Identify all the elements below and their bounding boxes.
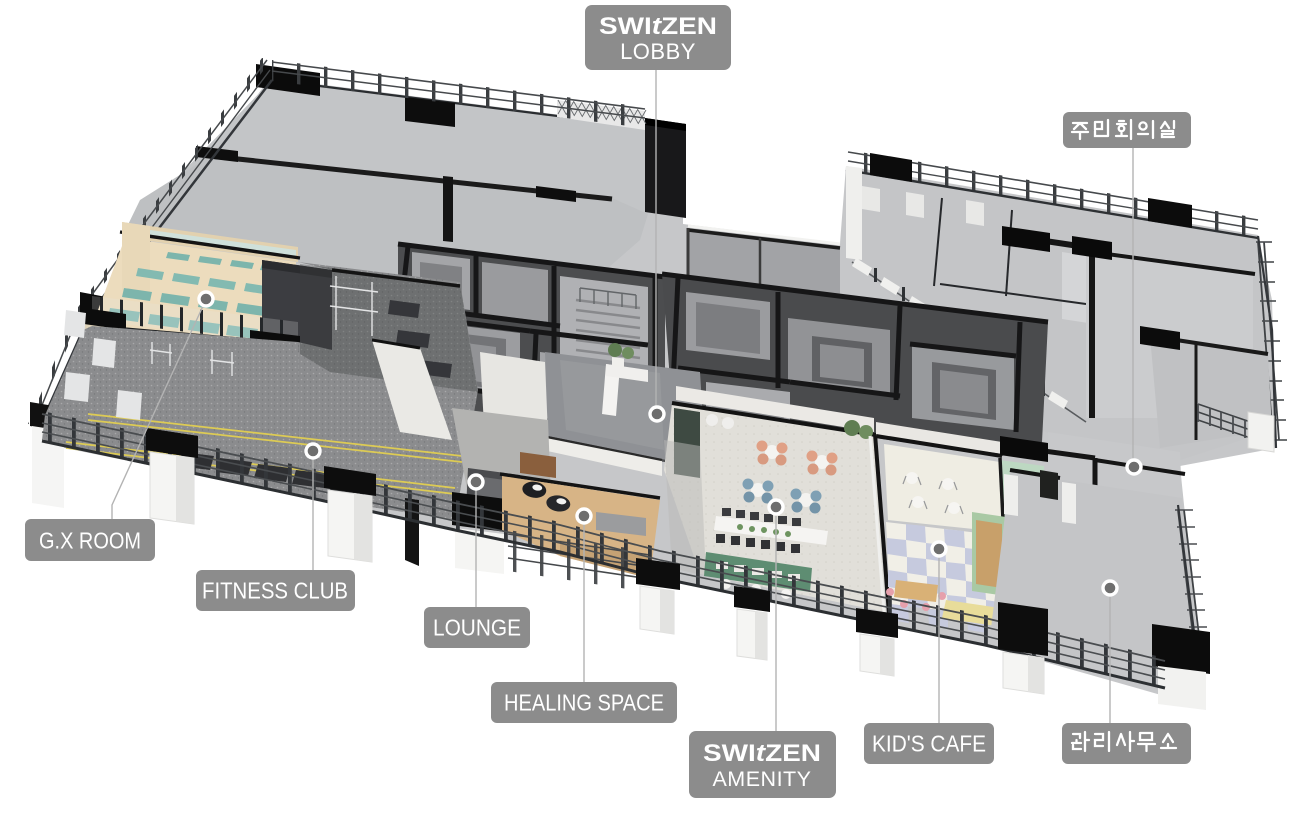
svg-text:FITNESS CLUB: FITNESS CLUB <box>202 578 348 604</box>
svg-text:SWItZEN: SWItZEN <box>599 13 717 40</box>
svg-text:LOBBY: LOBBY <box>620 39 696 64</box>
svg-text:KID'S CAFE: KID'S CAFE <box>872 731 986 757</box>
svg-text:LOUNGE: LOUNGE <box>433 615 521 641</box>
svg-text:AMENITY: AMENITY <box>712 767 811 791</box>
svg-text:HEALING SPACE: HEALING SPACE <box>504 690 664 716</box>
svg-text:G.X ROOM: G.X ROOM <box>39 528 141 554</box>
svg-text:SWItZEN: SWItZEN <box>703 740 821 767</box>
